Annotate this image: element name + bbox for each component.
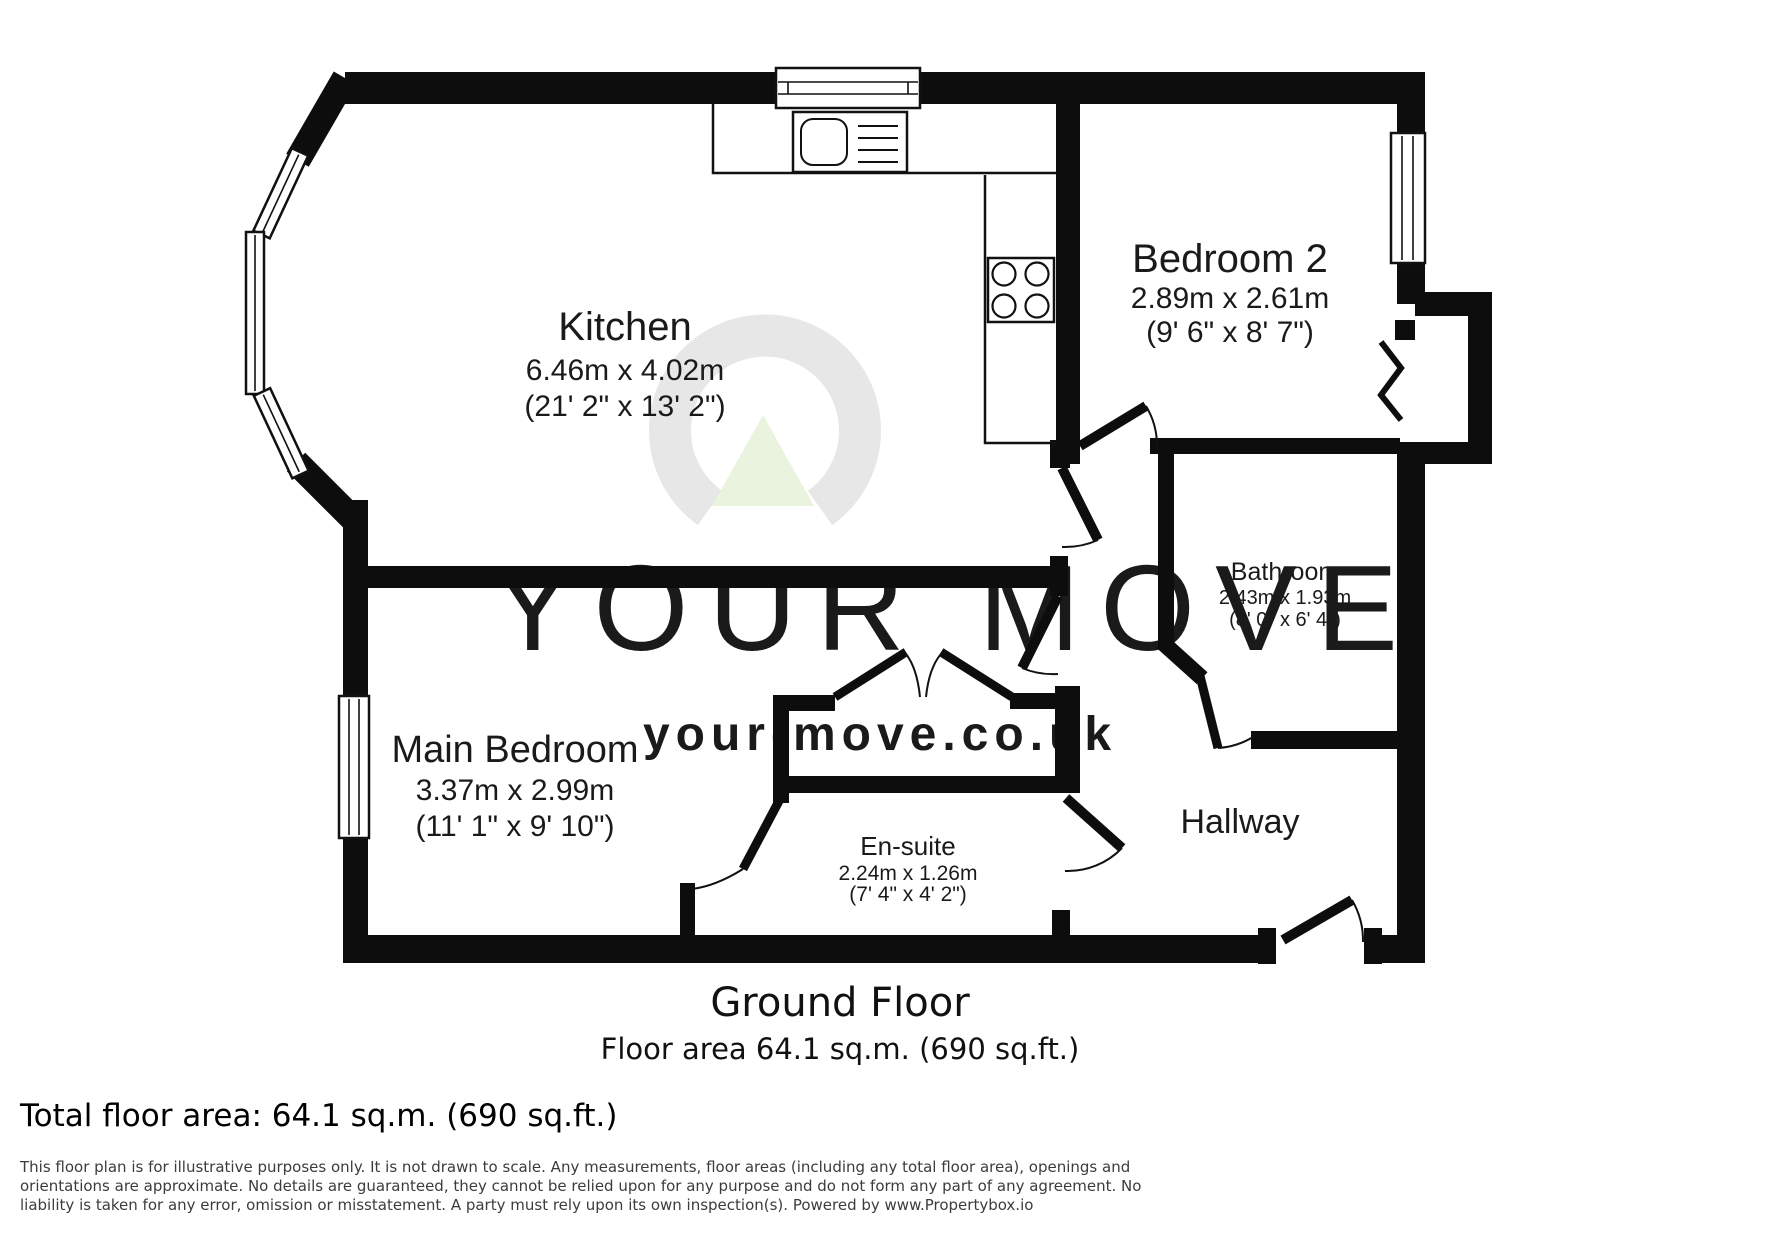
wall-stub-entrance-right [1364, 928, 1382, 964]
kitchen-dims-m: 6.46m x 4.02m [526, 354, 724, 387]
wall-bathroom-top [1150, 438, 1400, 454]
main-bedroom-dims-m: 3.37m x 2.99m [416, 774, 614, 807]
hallway-bedroom-door-icon [1065, 798, 1122, 871]
main-bedroom-window-icon [339, 696, 369, 838]
hob-icon [988, 258, 1054, 322]
kitchen-dims-ft: (21' 2" x 13' 2") [524, 390, 725, 423]
wall-ensuite-left [773, 695, 789, 803]
main-bedroom-name: Main Bedroom [391, 729, 638, 771]
wall-bathroom-left [1158, 454, 1174, 646]
ensuite-dims-ft: (7' 4" x 4' 2") [849, 883, 966, 906]
room-label-bedroom2: Bedroom 2 2.89m x 2.61m (9' 6" x 8' 7") [1131, 237, 1329, 349]
floor-plan: YOUR MOVE your-move.co.uk [0, 0, 1771, 980]
room-label-ensuite: En-suite 2.24m x 1.26m (7' 4" x 4' 2") [839, 831, 978, 906]
disclaimer-text: This floor plan is for illustrative purp… [20, 1158, 1150, 1215]
wall-recess-right [1468, 292, 1492, 464]
kitchen-name: Kitchen [558, 305, 691, 349]
watermark-url-text: your-move.co.uk [643, 708, 1117, 761]
ensuite-dims-m: 2.24m x 1.26m [839, 862, 978, 885]
bathroom-dims-ft: (8' 0" x 6' 4") [1229, 609, 1341, 631]
sink-icon [793, 112, 907, 172]
bedroom2-door-icon [1080, 406, 1157, 446]
bedroom2-dims-m: 2.89m x 2.61m [1131, 282, 1329, 315]
wall-kitchen-bedroom2 [1056, 104, 1080, 464]
floor-caption: Ground Floor Floor area 64.1 sq.m. (690 … [0, 980, 1680, 1066]
kitchen-door-icon [1062, 468, 1098, 547]
cupboard-folding-door-icon [1381, 342, 1401, 420]
wall-stub-recess [1395, 320, 1415, 340]
bedroom2-dims-ft: (9' 6" x 8' 7") [1146, 316, 1314, 349]
watermark-triangle-icon [712, 415, 814, 506]
bathroom-door-icon [1200, 676, 1253, 748]
wall-kitchen-mainbedroom [366, 566, 1057, 588]
wall-stub-hallway-bottom [1052, 910, 1070, 940]
wall-wardrobe-front-right [1010, 693, 1056, 709]
floor-title: Ground Floor [0, 980, 1680, 1026]
wall-ensuite-right [1055, 686, 1080, 793]
floor-area-line: Floor area 64.1 sq.m. (690 sq.ft.) [0, 1032, 1680, 1066]
wall-stub-hall-a [1050, 556, 1068, 596]
room-label-kitchen: Kitchen 6.46m x 4.02m (21' 2" x 13' 2") [524, 305, 725, 423]
total-floor-area: Total floor area: 64.1 sq.m. (690 sq.ft.… [20, 1098, 617, 1134]
floorplan-page: YOUR MOVE your-move.co.uk [0, 0, 1771, 1239]
bathroom-dims-m: 2.43m x 1.93m [1219, 587, 1351, 609]
main-bedroom-dims-ft: (11' 1" x 9' 10") [416, 810, 615, 843]
room-label-bathroom: Bathroom 2.43m x 1.93m (8' 0" x 6' 4") [1219, 558, 1351, 631]
bedroom2-window-icon [1391, 133, 1425, 263]
ensuite-name: En-suite [860, 831, 955, 861]
wall-stub-ensuite-bottom [680, 883, 695, 939]
bay-window-icon [246, 148, 309, 478]
ensuite-door-icon [692, 801, 779, 889]
kitchen-window-icon [776, 68, 920, 108]
wall-stub-entrance-left [1258, 928, 1276, 964]
wall-bathroom-bottom [1251, 731, 1397, 749]
bathroom-name: Bathroom [1231, 558, 1339, 586]
wall-ensuite-top [788, 776, 1080, 793]
room-label-main-bedroom: Main Bedroom 3.37m x 2.99m (11' 1" x 9' … [391, 729, 638, 843]
bedroom2-name: Bedroom 2 [1132, 237, 1328, 281]
wall-right-lower [1397, 442, 1425, 963]
hallway-name: Hallway [1180, 803, 1299, 841]
